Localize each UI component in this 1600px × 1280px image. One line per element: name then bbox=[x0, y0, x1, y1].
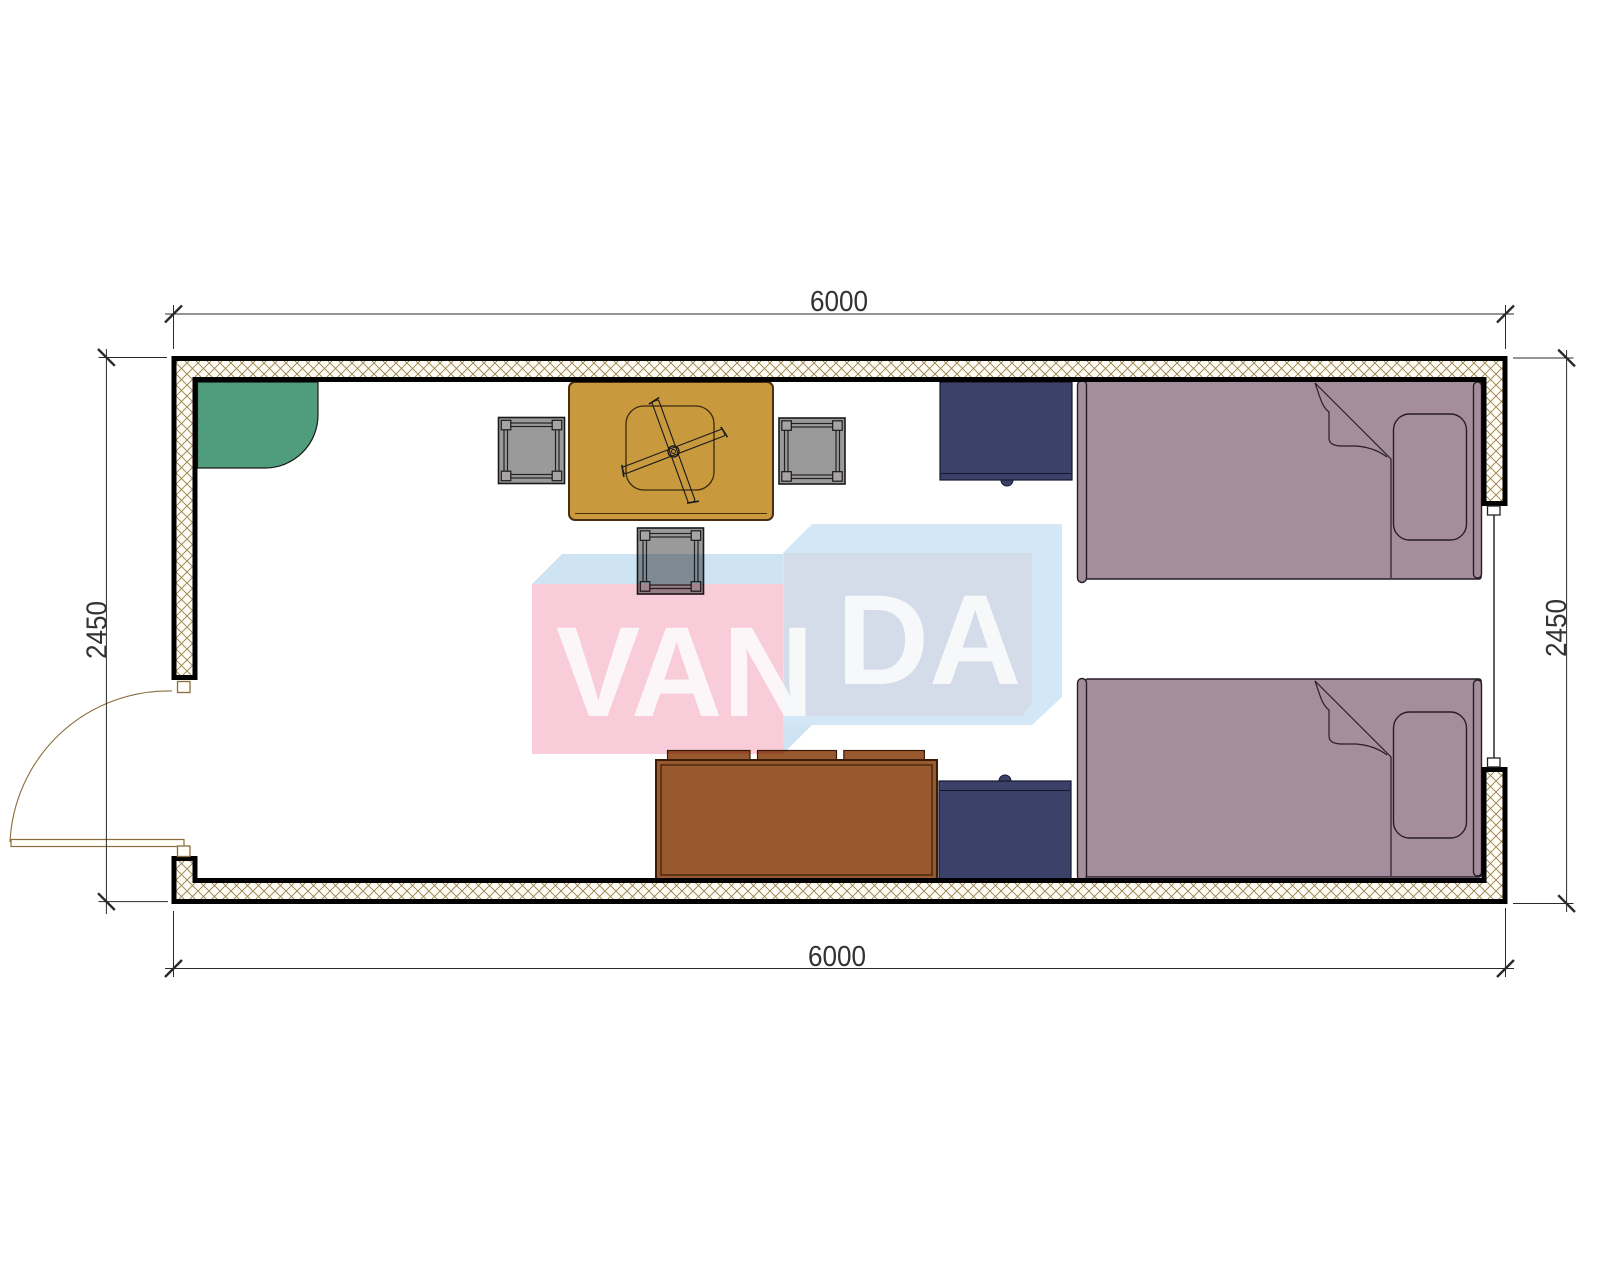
svg-text:2450: 2450 bbox=[1540, 599, 1573, 657]
svg-text:DA: DA bbox=[837, 569, 1022, 712]
svg-text:VAN: VAN bbox=[556, 600, 814, 743]
svg-text:2450: 2450 bbox=[80, 601, 113, 659]
svg-text:6000: 6000 bbox=[810, 285, 868, 318]
svg-text:6000: 6000 bbox=[808, 940, 866, 973]
